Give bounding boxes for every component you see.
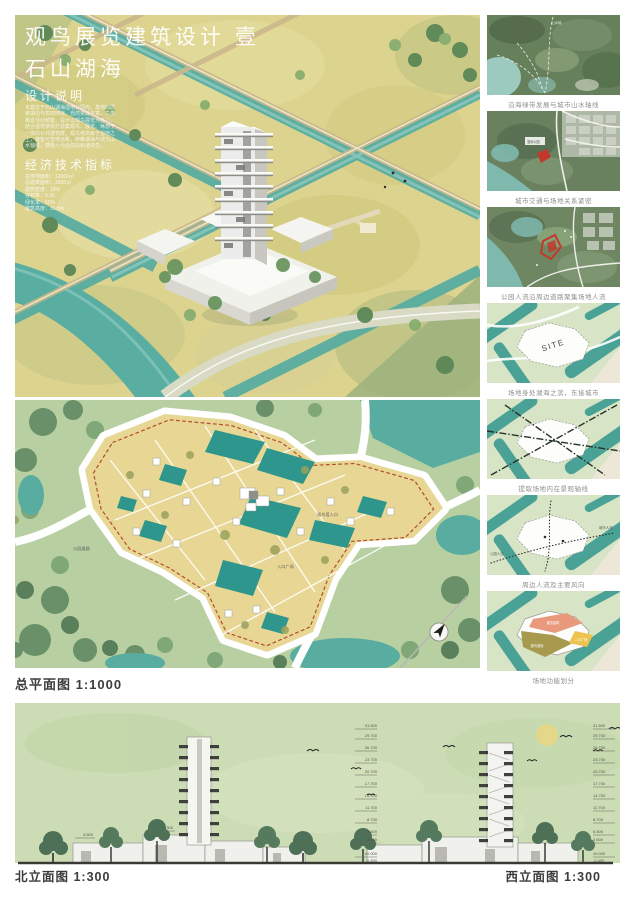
site-diagram: SITE — [487, 303, 620, 383]
north-level-a: 4.500 — [83, 832, 94, 837]
svg-text:29.700: 29.700 — [365, 733, 378, 738]
analysis-panel-zoning: 展览建筑 观鸟湿地 入口广场 场地功能划分 — [487, 591, 620, 687]
svg-text:5.400: 5.400 — [593, 829, 604, 834]
sun-icon — [536, 724, 558, 746]
zoning-diagram: 展览建筑 观鸟湿地 入口广场 — [487, 591, 620, 671]
indicators-text: 总用地面积：12000㎡ 总建筑面积：3600㎡ 建筑密度：18% 容积率：0.… — [25, 174, 143, 212]
flow-label-right: 城市人流 — [599, 525, 613, 530]
svg-text:11.700: 11.700 — [593, 805, 606, 810]
svg-text:26.700: 26.700 — [365, 745, 378, 750]
svg-text:29.700: 29.700 — [593, 733, 606, 738]
pedestrian-diagram: 公园人流 城市人流 — [487, 495, 620, 575]
west-elevation-label: 西立面图 1:300 — [506, 866, 601, 885]
analysis-panel-traffic: 湿地公园 城市交通与场地关系紧密 — [487, 111, 620, 207]
panel-caption: 周边人流及主要风向 — [487, 575, 620, 591]
svg-text:26.700: 26.700 — [593, 745, 606, 750]
svg-text:14.700: 14.700 — [365, 793, 378, 798]
svg-text:31.500: 31.500 — [365, 723, 378, 728]
indicators-heading: 经济技术指标 — [25, 156, 115, 173]
analysis-panel-region: 山水轴 沿海绿带发展与城市山水轴线 — [487, 15, 620, 111]
site-plan-label: 总平面图 1:1000 — [15, 674, 122, 693]
site-plan: 观鸟塔入口 公园道路 入口广场 — [15, 400, 480, 668]
annotation-entry: 观鸟塔入口 — [317, 511, 338, 518]
axes-diagram — [487, 399, 620, 479]
svg-text:11.700: 11.700 — [365, 805, 378, 810]
svg-text:3.600: 3.600 — [367, 837, 378, 842]
panel-caption: 场地功能划分 — [487, 671, 620, 687]
svg-text:31.500: 31.500 — [593, 723, 606, 728]
analysis-column: 山水轴 沿海绿带发展与城市山水轴线 — [487, 15, 620, 687]
svg-text:23.700: 23.700 — [593, 757, 606, 762]
flow-label-left: 公园人流 — [490, 551, 504, 556]
city-blocks — [583, 213, 615, 250]
svg-text:±0.000: ±0.000 — [593, 851, 606, 856]
svg-text:17.700: 17.700 — [365, 781, 378, 786]
svg-text:20.700: 20.700 — [365, 769, 378, 774]
zone-label-c: 入口广场 — [575, 637, 588, 642]
svg-text:14.700: 14.700 — [593, 793, 606, 798]
panel-caption: 提取场地内在景观轴线 — [487, 479, 620, 495]
svg-text:5.400: 5.400 — [367, 829, 378, 834]
svg-text:23.700: 23.700 — [365, 757, 378, 762]
annotation-plaza: 入口广场 — [277, 563, 294, 570]
svg-text:20.700: 20.700 — [593, 769, 606, 774]
svg-text:8.700: 8.700 — [367, 817, 378, 822]
panel-caption: 公园人流沿周边道路聚集场地人流 — [487, 287, 620, 303]
svg-text:山水轴: 山水轴 — [551, 20, 562, 25]
satellite-map-site — [487, 207, 620, 287]
presentation-board: 观鸟展览建筑设计 壹 石山湖海 设计说明 本案位于石山湖海湿地公园内，基地四周 … — [0, 0, 635, 900]
panel-caption: 沿海绿带发展与城市山水轴线 — [487, 95, 620, 111]
board-title: 观鸟展览建筑设计 壹 — [25, 21, 260, 51]
analysis-panel-site: SITE 场地身处湖海之滨，东接城市 — [487, 303, 620, 399]
analysis-panel-pedestrian: 公园人流 城市人流 周边人流及主要风向 — [487, 495, 620, 591]
svg-text:±0.000: ±0.000 — [365, 851, 378, 856]
analysis-panel-flow-satellite: 公园人流沿周边道路聚集场地人流 — [487, 207, 620, 303]
city-blocks — [562, 111, 620, 157]
board-subtitle: 石山湖海 — [25, 53, 125, 83]
north-elevation-label: 北立面图 1:300 — [15, 866, 110, 885]
hero-rendering: 观鸟展览建筑设计 壹 石山湖海 设计说明 本案位于石山湖海湿地公园内，基地四周 … — [15, 15, 480, 397]
zone-label-b: 观鸟湿地 — [531, 643, 545, 648]
svg-text:17.700: 17.700 — [593, 781, 606, 786]
zone-label-a: 展览建筑 — [547, 620, 561, 625]
svg-text:湿地公园: 湿地公园 — [527, 139, 540, 144]
satellite-map-traffic: 湿地公园 — [487, 111, 620, 191]
svg-text:8.700: 8.700 — [593, 817, 604, 822]
analysis-panel-axes: 提取场地内在景观轴线 — [487, 399, 620, 495]
elevations-strip: 4.500 6.300 — [15, 703, 620, 865]
satellite-map-region: 山水轴 — [487, 15, 620, 95]
panel-caption: 城市交通与场地关系紧密 — [487, 191, 620, 207]
design-notes-heading: 设计说明 — [25, 87, 85, 104]
annotation-road: 公园道路 — [73, 545, 91, 552]
design-notes-text: 本案位于石山湖海湿地公园内，基地四周 被湖泊与农田环绕，自然资源丰富，鸟类 栖息… — [25, 105, 143, 150]
panel-caption: 场地身处湖海之滨，东接城市 — [487, 383, 620, 399]
svg-text:3.600: 3.600 — [593, 837, 604, 842]
